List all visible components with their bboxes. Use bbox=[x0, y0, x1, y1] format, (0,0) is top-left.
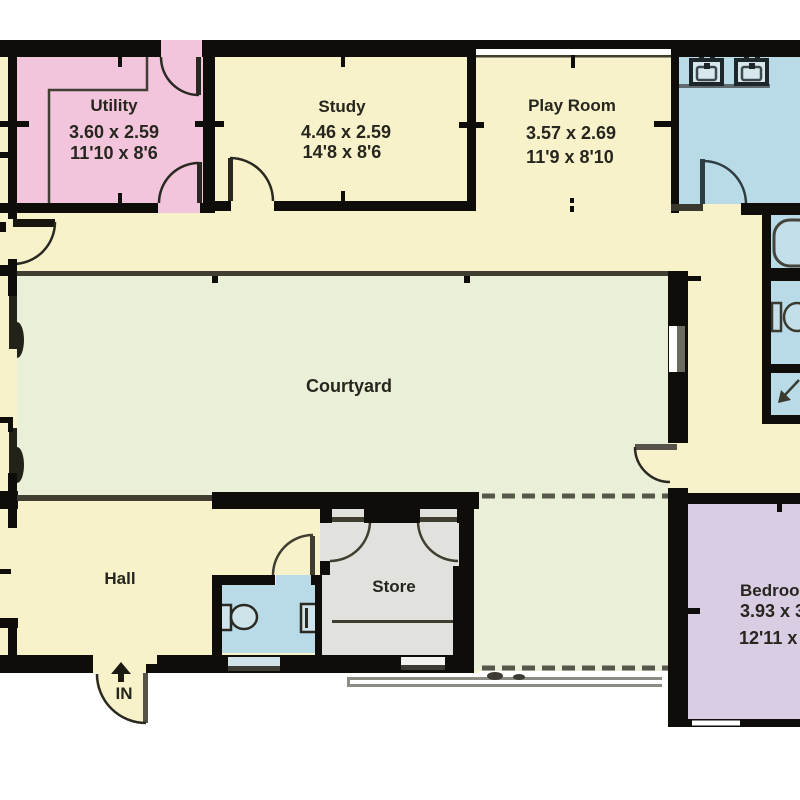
svg-text:IN: IN bbox=[116, 684, 133, 703]
svg-text:11'10 x 8'6: 11'10 x 8'6 bbox=[70, 143, 158, 163]
svg-text:12'11 x 11'0: 12'11 x 11'0 bbox=[739, 628, 800, 648]
svg-text:14'8 x 8'6: 14'8 x 8'6 bbox=[303, 142, 382, 162]
svg-text:3.93 x 3.35: 3.93 x 3.35 bbox=[740, 601, 800, 621]
svg-text:Bedroom: Bedroom bbox=[740, 581, 800, 600]
svg-text:Hall: Hall bbox=[104, 569, 135, 588]
svg-text:3.60 x 2.59: 3.60 x 2.59 bbox=[69, 122, 159, 142]
svg-text:Store: Store bbox=[372, 577, 415, 596]
svg-text:4.46 x 2.59: 4.46 x 2.59 bbox=[301, 122, 391, 142]
svg-text:Study: Study bbox=[318, 97, 366, 116]
svg-text:3.57 x 2.69: 3.57 x 2.69 bbox=[526, 123, 616, 143]
svg-text:11'9 x 8'10: 11'9 x 8'10 bbox=[526, 147, 614, 167]
svg-text:Play Room: Play Room bbox=[528, 96, 616, 115]
svg-text:Utility: Utility bbox=[90, 96, 138, 115]
svg-text:Courtyard: Courtyard bbox=[306, 376, 392, 396]
